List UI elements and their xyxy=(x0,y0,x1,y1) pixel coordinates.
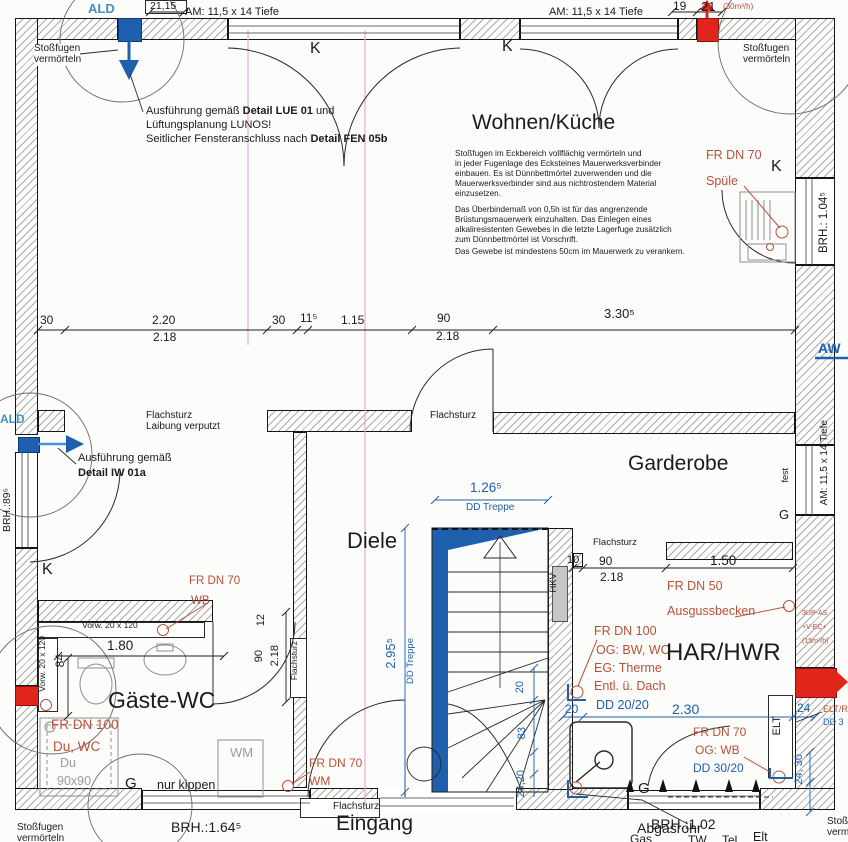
ald-vent-left xyxy=(18,437,40,453)
am-depth-left: AM: 11,5 x 14 Tiefe xyxy=(185,7,279,19)
note-lue-1a: Ausführung gemäß xyxy=(146,105,243,117)
vent-red-top xyxy=(697,18,719,42)
wm-box-label: WM xyxy=(230,746,253,760)
flow-30: (30m³/h) xyxy=(723,3,753,12)
dim-21: 21 xyxy=(701,0,715,14)
wall-interior-a3 xyxy=(493,412,795,434)
dd-treppe-v: DD Treppe xyxy=(406,638,416,684)
wm-drain-label: WM xyxy=(309,775,330,788)
note-ueb-1: Das Überbindemaß von 0,5h ist für das an… xyxy=(455,206,648,215)
dim-24: 24 xyxy=(797,702,810,715)
dim-90a: 90 xyxy=(437,312,450,325)
wall-gwc-top xyxy=(38,600,213,622)
laibung-verputzt: Laibung verputzt xyxy=(146,422,220,433)
note-lue-3b: Detail FEN 05b xyxy=(310,133,387,145)
vorwand-label-v: Vorw. 20 x 120 xyxy=(38,636,47,692)
brh-164: BRH.:1.64⁵ xyxy=(171,820,241,835)
fr-dn70-wb: FR DN 70 xyxy=(189,575,240,587)
ald-vent-top xyxy=(118,18,142,42)
dim-2420: 24,20 xyxy=(516,770,528,798)
flachsturz-3: Flachsturz xyxy=(593,538,637,548)
entry-door-opening xyxy=(378,790,516,810)
eg-therme: EG: Therme xyxy=(594,662,662,676)
wall-bottom-1 xyxy=(15,788,142,810)
fr-dn50: FR DN 50 xyxy=(667,580,723,594)
staircase xyxy=(407,528,548,792)
floor-plan-page: ALD 21,15 AM: 11,5 x 14 Tiefe AM: 11,5 x… xyxy=(0,0,848,842)
dim-84: 84 xyxy=(54,654,67,667)
window-gwc xyxy=(142,790,310,810)
stossfugen-bl-2: vermörteln xyxy=(17,834,64,842)
dim-218b: 2.18 xyxy=(436,330,459,343)
note-lue-line2: Lüftungsplanung LUNOS! xyxy=(146,120,271,132)
dim-218a: 2.18 xyxy=(153,331,176,344)
g-label-3: G xyxy=(638,781,650,797)
dim-90b: 90 xyxy=(599,555,612,568)
og-bw-wc: OG: BW, WC xyxy=(596,644,670,658)
fest-label: fest xyxy=(781,468,791,483)
k-label-4: K xyxy=(42,561,53,578)
note-eck-3: einbauen. Es ist Dünnbettmörtel zuverwen… xyxy=(455,170,652,179)
wall-right-1 xyxy=(795,18,835,178)
room-eingang: Eingang xyxy=(336,813,413,836)
note-lue-1b: Detail LUE 01 xyxy=(243,105,313,117)
up-as-label: 3UP-AS xyxy=(802,610,827,618)
gas-label: Gas xyxy=(630,833,652,842)
stair-dd-marking xyxy=(432,528,548,792)
du-wc-label: Du, WC xyxy=(53,740,100,755)
elt-box xyxy=(768,695,793,778)
dim-218c: 2.18 xyxy=(600,571,623,584)
note-lue-3a: Seitlicher Fensteranschluss nach xyxy=(146,133,310,145)
wall-interior-stem xyxy=(293,432,307,788)
elt-bottom-label: Elt xyxy=(753,831,768,842)
dim-21-15: 21,15 xyxy=(150,1,176,12)
dim-150: 1.50 xyxy=(710,554,736,569)
vorwand-label-h: Vorw. 20 x 120 xyxy=(82,621,138,630)
note-eck-2: in jeder Fugenlage des Ecksteines Mauerw… xyxy=(455,160,661,169)
ald-arrow-down-icon xyxy=(119,60,139,80)
wb-label: WB xyxy=(191,595,210,607)
room-diele: Diele xyxy=(347,529,397,553)
dim-218d: 2.18 xyxy=(270,645,282,666)
dim-180: 1.80 xyxy=(107,639,133,654)
note-iw-1: Ausführung gemäß xyxy=(78,453,172,465)
note-ueb-2: Brüstungsmauerwerk einzuhalten. Das Einl… xyxy=(455,216,652,225)
flachsturz-2: Flachsturz xyxy=(430,411,476,422)
g-label-2: G xyxy=(125,776,137,792)
dd-30-label: DD 3 xyxy=(823,718,844,728)
fr-dn100-har: FR DN 100 xyxy=(594,625,657,639)
tel-label: Tel. xyxy=(722,834,741,842)
window-left xyxy=(15,452,38,548)
wall-bottom-3 xyxy=(516,788,628,810)
elt-label: ELT xyxy=(772,716,784,735)
g-label-1: G xyxy=(779,508,789,522)
wall-bottom-4 xyxy=(760,788,835,810)
note-ueb-5: Das Gewebe ist mindestens 50cm im Mauerw… xyxy=(455,248,685,257)
og-wb: OG: WB xyxy=(695,744,740,757)
washbasin-icon xyxy=(144,645,186,675)
dim-20a: 20 xyxy=(515,681,527,693)
room-har-hwr: HAR/HWR xyxy=(666,640,781,666)
ald-label-left: ALD xyxy=(0,413,25,426)
dd-treppe-h: DD Treppe xyxy=(466,503,514,514)
note-lue-line3: Seitlicher Fensteranschluss nach Detail … xyxy=(146,134,388,146)
du-label: Du xyxy=(60,757,76,771)
note-eck-5: einzusetzen. xyxy=(455,190,501,199)
fr-dn100-du: FR DN 100 xyxy=(51,718,119,733)
dim-230: 2.30 xyxy=(672,702,699,717)
aw-label: AW xyxy=(818,341,841,356)
wall-left-1 xyxy=(15,18,38,435)
kitchen-sink-icon xyxy=(740,192,795,262)
dim-30a: 30 xyxy=(40,314,53,327)
dim-19: 19 xyxy=(673,0,686,13)
note-iw-2: Detail IW 01a xyxy=(78,468,146,480)
dd-2020: DD 20/20 xyxy=(596,699,649,713)
wall-top-4 xyxy=(678,18,697,40)
wall-interior-a1 xyxy=(38,410,65,432)
nur-kippen-label: nur kippen xyxy=(157,779,215,793)
wall-top-3 xyxy=(460,18,520,40)
wall-top-2 xyxy=(140,18,228,40)
wall-interior-a2 xyxy=(267,410,412,432)
dim-20b: 20 xyxy=(565,703,578,716)
dim-90c: 90 xyxy=(254,650,266,662)
hkv-label: HKV xyxy=(549,573,559,593)
room-gaeste-wc: Gäste-WC xyxy=(108,688,215,713)
vent-red-right xyxy=(795,668,837,698)
room-garderobe: Garderobe xyxy=(628,453,728,476)
stair-newel-circle xyxy=(407,747,441,781)
ausgussbecken-label: Ausgussbecken xyxy=(667,605,755,619)
note-lue-1c: und xyxy=(313,105,334,117)
fr-dn70-wm: FR DN 70 xyxy=(309,757,362,770)
dim-126: 1.26⁵ xyxy=(470,481,502,496)
window-top-mid xyxy=(520,18,678,40)
note-eck-4: Mauerwerksverbinder sind aus nichtrosten… xyxy=(455,180,656,189)
flachsturz-stem: Flachsturz xyxy=(290,641,299,680)
note-ueb-4: zum Dünnbettmörtel ist Vorschrift. xyxy=(455,236,578,245)
flow-15: (15m³/h) xyxy=(802,638,828,646)
boiler-group xyxy=(570,722,632,788)
am-depth-right: AM: 11,5 x 14 Tiefe xyxy=(820,420,831,505)
boiler-icon xyxy=(570,722,632,788)
room-wohnen-kueche: Wohnen/Küche xyxy=(472,112,615,135)
tw-label: TW xyxy=(688,834,707,842)
dim-10: 10 xyxy=(567,555,579,567)
dim-295: 2.95⁵ xyxy=(384,638,398,669)
note-ueb-3: alkaliresistenten Gewebes in die letzte … xyxy=(455,226,672,235)
dim-330: 3.30⁵ xyxy=(604,307,635,321)
note-eck-1: Stoßfugen im Eckbereich vollflächig verm… xyxy=(455,150,642,159)
am-depth-mid: AM: 11,5 x 14 Tiefe xyxy=(549,7,643,19)
spuele-label: Spüle xyxy=(706,175,738,189)
du-size-label: 90x90 xyxy=(57,775,91,789)
brh-89: BRH.:89⁵ xyxy=(2,488,13,532)
note-lue-line1: Ausführung gemäß Detail LUE 01 und xyxy=(146,106,334,118)
stossfugen-br-2: vermörteln xyxy=(827,828,848,839)
brh-102: BRH.:1.02 xyxy=(651,817,716,832)
dim-1-15: 1.15 xyxy=(341,314,364,327)
v-ec-label: +V-EC+ xyxy=(802,624,827,632)
ald-label-top: ALD xyxy=(88,2,115,16)
entl-dach: Entl. ü. Dach xyxy=(594,680,666,694)
k-label-1: K xyxy=(310,40,321,57)
wall-left-2 xyxy=(15,548,38,686)
ald-arrow-right-icon xyxy=(66,435,84,453)
fr-dn70-og: FR DN 70 xyxy=(693,726,746,739)
k-label-2: K xyxy=(502,38,513,55)
dim-115: 11⁵ xyxy=(300,312,317,325)
dim-30b: 30 xyxy=(272,314,285,327)
window-top-left xyxy=(228,18,460,40)
stair-direction-arrow xyxy=(484,536,516,558)
stossfugen-tr-2: vermörteln xyxy=(743,55,790,66)
fr-dn70-spuele: FR DN 70 xyxy=(706,149,762,163)
dim-12: 12 xyxy=(256,614,268,626)
dim-220: 2.20 xyxy=(152,314,175,327)
k-label-3: K xyxy=(771,158,782,175)
elt-r-label: ELT/R xyxy=(823,705,848,715)
dd-3020: DD 30/20 xyxy=(693,762,744,775)
dim-83: 83 xyxy=(517,727,529,739)
stossfugen-tl-2: vermörteln xyxy=(34,55,81,66)
brh-104: BRH.: 1.04⁵ xyxy=(818,192,830,253)
dim-2430: 24, 30 xyxy=(794,754,806,785)
